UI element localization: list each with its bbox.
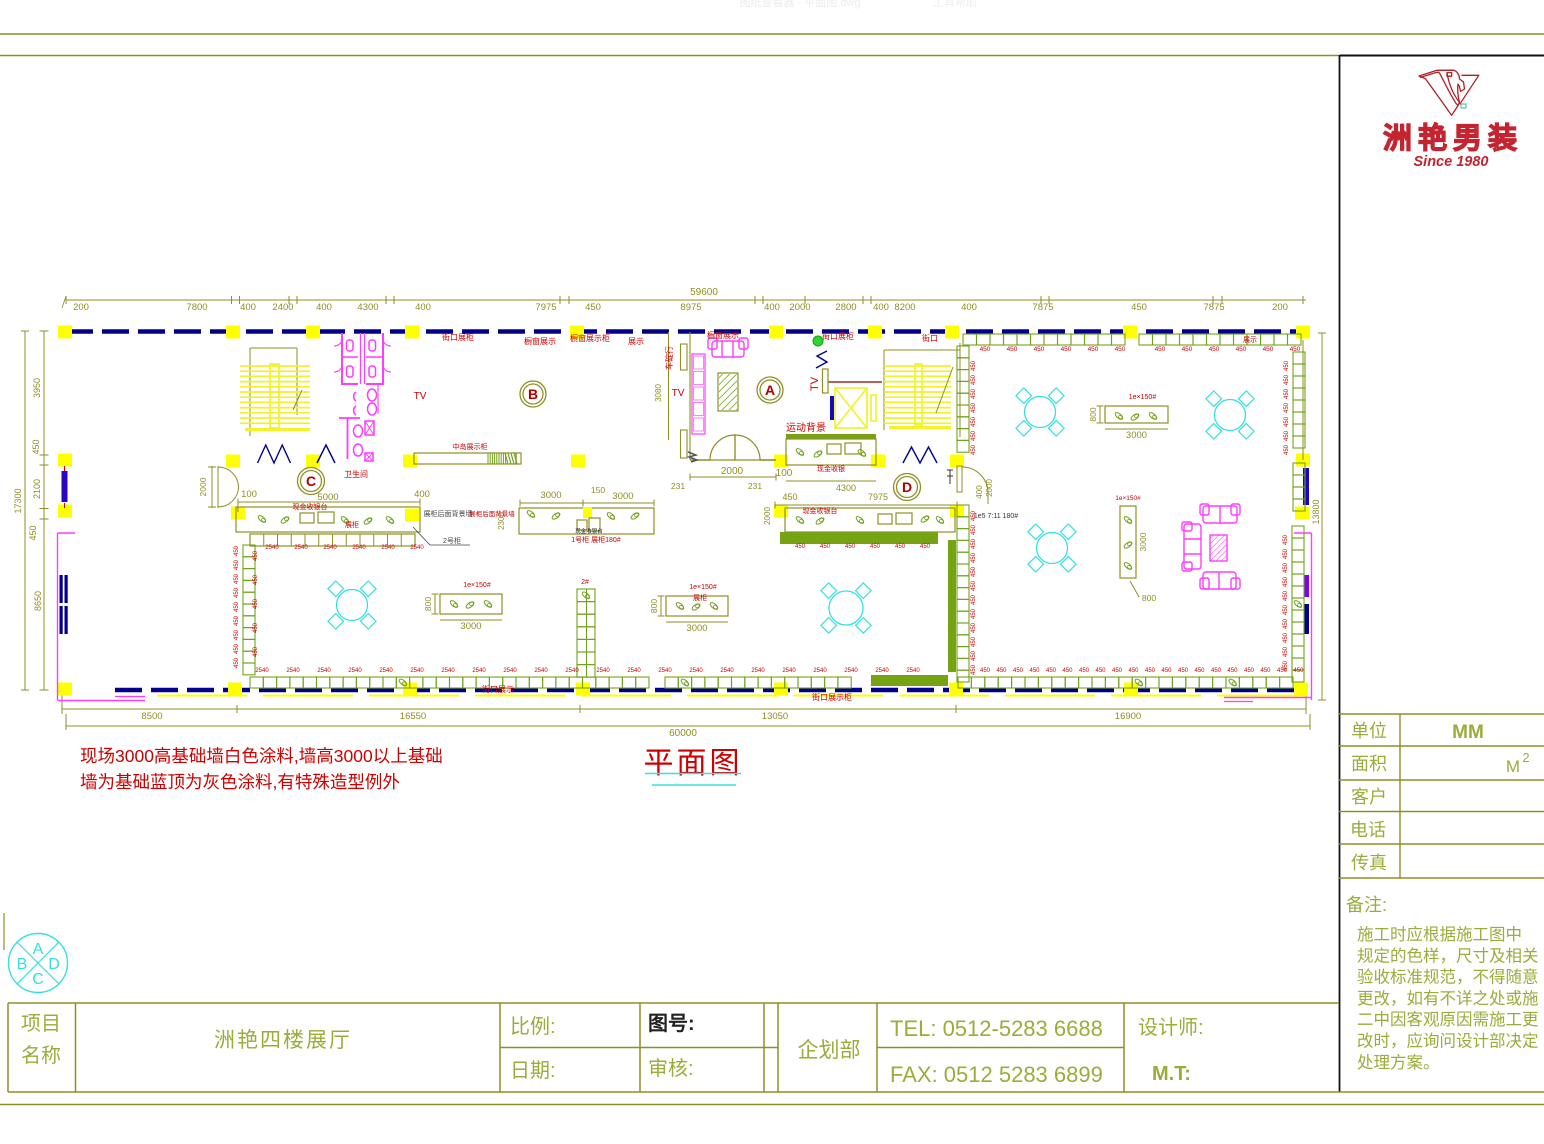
svg-text:150: 150 [591,485,605,495]
svg-text:展示: 展示 [628,337,644,346]
svg-text:450: 450 [971,430,977,441]
svg-text:450: 450 [1029,668,1040,674]
svg-text:450: 450 [971,360,977,371]
svg-text:450: 450 [971,524,977,535]
svg-text:450: 450 [1115,346,1126,353]
svg-text:450: 450 [971,608,977,619]
svg-text:平面图: 平面图 [644,747,743,780]
svg-text:450: 450 [845,544,856,550]
svg-text:2540: 2540 [294,545,308,551]
svg-text:图纸查看器 - 平面图.dwg: 图纸查看器 - 平面图.dwg [739,0,860,9]
svg-text:橱窗展示柜: 橱窗展示柜 [570,333,610,343]
svg-text:450: 450 [996,668,1007,674]
svg-text:1e×150#: 1e×150# [463,582,491,589]
svg-text:1号柜 展柜180#: 1号柜 展柜180# [571,535,621,544]
svg-text:450: 450 [971,594,977,605]
svg-text:2540: 2540 [503,668,517,674]
svg-text:2540: 2540 [265,545,279,551]
svg-text:450: 450 [1283,576,1289,587]
svg-text:1e×150#: 1e×150# [1115,495,1141,502]
svg-text:450: 450 [1209,346,1220,353]
svg-text:现场3000高基础墙白色涂料,墙高3000以上基础: 现场3000高基础墙白色涂料,墙高3000以上基础 [80,746,443,766]
svg-text:1e×150#: 1e×150# [689,584,717,591]
svg-text:FAX: 0512 5283 6899: FAX: 0512 5283 6899 [890,1062,1103,1087]
svg-text:2540: 2540 [844,668,858,674]
svg-text:D: D [902,479,912,495]
svg-text:2540: 2540 [720,668,734,674]
svg-text:1e×150#: 1e×150# [1129,394,1157,401]
svg-text:2540: 2540 [410,545,424,551]
svg-text:17300: 17300 [13,488,23,513]
svg-text:16900: 16900 [1115,711,1141,722]
svg-text:TV: TV [672,388,685,399]
svg-text:日期:: 日期: [510,1060,556,1082]
svg-text:450: 450 [1293,668,1304,674]
svg-text:450: 450 [971,664,977,675]
svg-text:洲艳四楼展厅: 洲艳四楼展厅 [214,1029,352,1052]
svg-text:2#: 2# [581,579,589,586]
svg-text:工具帮助: 工具帮助 [933,0,977,9]
svg-text:7975: 7975 [535,302,556,313]
svg-text:400: 400 [764,302,780,313]
svg-text:展柜后面背景墙: 展柜后面背景墙 [424,509,473,518]
svg-text:B: B [528,386,538,402]
svg-text:3000: 3000 [612,491,633,502]
svg-text:备注:: 备注: [1346,895,1387,915]
svg-text:60000: 60000 [669,728,697,739]
svg-text:450: 450 [253,646,259,657]
svg-text:街口展柜: 街口展柜 [442,332,474,342]
svg-text:450: 450 [1283,618,1289,629]
svg-text:单位: 单位 [1351,721,1387,741]
svg-text:二中因客观原因需施工更: 二中因客观原因需施工更 [1357,1010,1539,1029]
svg-text:400: 400 [415,302,431,313]
svg-text:街口: 街口 [922,333,938,343]
svg-text:2540: 2540 [596,668,610,674]
svg-text:450: 450 [31,439,41,454]
svg-text:450: 450 [1284,430,1290,441]
svg-text:450: 450 [795,544,806,550]
svg-text:电话: 电话 [1350,820,1386,840]
svg-text:3000: 3000 [460,621,481,632]
svg-text:更改，如有不详之处或施: 更改，如有不详之处或施 [1357,989,1539,1008]
svg-text:街口展示: 街口展示 [482,684,514,694]
svg-text:2400: 2400 [272,302,293,313]
svg-text:M: M [1506,757,1520,776]
svg-text:450: 450 [1034,346,1045,353]
svg-text:现金收银: 现金收银 [817,464,845,473]
svg-text:450: 450 [1244,668,1255,674]
svg-text:450: 450 [1227,668,1238,674]
svg-text:16550: 16550 [400,711,426,722]
svg-text:2540: 2540 [689,668,703,674]
svg-text:2: 2 [1522,750,1529,765]
svg-text:街口展柜: 街口展柜 [822,331,854,341]
svg-text:450: 450 [971,374,977,385]
svg-text:450: 450 [1128,668,1139,674]
svg-text:4300: 4300 [357,302,378,313]
svg-text:洲艳男装: 洲艳男装 [1383,121,1523,155]
svg-text:车碇行: 车碇行 [664,346,674,370]
svg-text:7875: 7875 [1032,302,1053,313]
svg-text:450: 450 [1161,668,1172,674]
svg-text:450: 450 [234,601,240,612]
svg-text:450: 450 [1284,444,1290,455]
svg-text:2540: 2540 [410,668,424,674]
svg-text:450: 450 [1283,534,1289,545]
svg-text:13800: 13800 [1311,499,1321,524]
svg-text:450: 450 [971,444,977,455]
svg-text:C: C [32,971,44,988]
svg-text:2540: 2540 [782,668,796,674]
svg-text:2540: 2540 [565,668,579,674]
svg-text:450: 450 [895,544,906,550]
svg-text:2540: 2540 [381,545,395,551]
svg-text:400: 400 [316,302,332,313]
svg-text:450: 450 [234,615,240,626]
svg-text:13050: 13050 [762,711,788,722]
svg-text:橱窗展示: 橱窗展示 [707,330,739,340]
svg-text:设计师:: 设计师: [1138,1016,1204,1039]
svg-text:450: 450 [1145,668,1156,674]
svg-text:450: 450 [1283,632,1289,643]
svg-text:项目: 项目 [21,1013,61,1035]
svg-text:450: 450 [234,545,240,556]
svg-text:450: 450 [1260,668,1271,674]
svg-text:2000: 2000 [721,466,744,477]
svg-text:8650: 8650 [33,591,43,611]
svg-text:2540: 2540 [751,668,765,674]
svg-text:规定的色样，尺寸及相关: 规定的色样，尺寸及相关 [1357,946,1539,965]
svg-text:TV: TV [414,391,427,402]
svg-text:450: 450 [1155,346,1166,353]
svg-text:审核:: 审核: [648,1057,694,1080]
svg-text:B: B [17,956,28,973]
svg-text:450: 450 [971,622,977,633]
svg-text:450: 450 [1283,590,1289,601]
svg-text:450: 450 [971,416,977,427]
svg-text:展柜: 展柜 [345,520,359,529]
svg-text:450: 450 [920,544,931,550]
svg-text:800: 800 [649,599,659,613]
svg-text:施工时应根据施工图中: 施工时应根据施工图中 [1357,925,1522,944]
svg-text:450: 450 [253,622,259,633]
svg-text:100: 100 [241,489,257,500]
svg-text:2540: 2540 [534,668,548,674]
svg-text:3950: 3950 [32,378,42,398]
svg-text:图号:: 图号: [648,1012,695,1035]
svg-text:TV: TV [809,376,821,391]
svg-text:2000: 2000 [789,302,810,313]
svg-text:450: 450 [980,668,991,674]
svg-text:450: 450 [585,302,601,313]
svg-text:800: 800 [423,597,433,611]
svg-text:450: 450 [234,587,240,598]
svg-text:2540: 2540 [906,668,920,674]
svg-text:2540: 2540 [352,545,366,551]
svg-text:450: 450 [971,650,977,661]
svg-text:450: 450 [1284,402,1290,413]
svg-text:墙为基础蓝顶为灰色涂料,有特殊造型例外: 墙为基础蓝顶为灰色涂料,有特殊造型例外 [80,772,400,792]
svg-text:C: C [306,473,316,489]
svg-text:450: 450 [234,573,240,584]
svg-text:400: 400 [240,302,256,313]
svg-text:450: 450 [1013,668,1024,674]
svg-text:现金收银台: 现金收银台 [575,527,603,535]
svg-text:8500: 8500 [141,711,162,722]
svg-text:450: 450 [1211,668,1222,674]
svg-text:2540: 2540 [379,668,393,674]
svg-text:450: 450 [1046,668,1057,674]
svg-text:橱窗展示: 橱窗展示 [524,336,556,346]
svg-text:400: 400 [975,485,984,499]
svg-text:450: 450 [1284,374,1290,385]
svg-text:2000: 2000 [198,477,208,496]
svg-text:客户: 客户 [1351,787,1387,807]
svg-text:改时，应询问设计部决定: 改时，应询问设计部决定 [1357,1032,1539,1051]
svg-text:2540: 2540 [348,668,362,674]
svg-text:450: 450 [1263,346,1274,353]
svg-text:8975: 8975 [680,302,701,313]
svg-text:200: 200 [1272,302,1288,313]
svg-text:450: 450 [971,580,977,591]
svg-text:450: 450 [1007,346,1018,353]
svg-text:2540: 2540 [472,668,486,674]
svg-text:A: A [765,382,775,398]
svg-text:450: 450 [253,550,259,561]
svg-text:街口展示柜: 街口展示柜 [812,692,852,702]
svg-text:3000: 3000 [540,490,561,501]
svg-text:450: 450 [980,346,991,353]
svg-text:2540: 2540 [875,668,889,674]
svg-text:2540: 2540 [323,545,337,551]
svg-text:231: 231 [748,481,762,491]
svg-text:验收标准规范，不得随意: 验收标准规范，不得随意 [1357,968,1539,987]
svg-text:450: 450 [820,544,831,550]
svg-text:3000: 3000 [1126,430,1147,441]
svg-text:现金收银台: 现金收银台 [293,502,328,511]
svg-text:450: 450 [971,566,977,577]
svg-text:450: 450 [1062,668,1073,674]
svg-text:450: 450 [1182,346,1193,353]
svg-text:4300: 4300 [836,483,856,493]
svg-text:1e5 7:11 180#: 1e5 7:11 180# [974,513,1018,520]
svg-text:450: 450 [1131,302,1147,313]
svg-text:TEL: 0512-5283 6688: TEL: 0512-5283 6688 [890,1016,1103,1041]
svg-text:卫生间: 卫生间 [344,469,368,479]
svg-text:200: 200 [73,302,89,313]
svg-text:3080: 3080 [654,384,663,402]
svg-text:2100: 2100 [32,479,42,499]
svg-text:450: 450 [234,559,240,570]
svg-text:2000: 2000 [763,507,772,525]
svg-text:450: 450 [1088,346,1099,353]
svg-text:企划部: 企划部 [798,1039,861,1062]
svg-text:2540: 2540 [627,668,641,674]
svg-text:450: 450 [1112,668,1123,674]
svg-text:450: 450 [1284,388,1290,399]
svg-text:2号柜: 2号柜 [443,536,461,545]
svg-text:450: 450 [253,598,259,609]
svg-text:450: 450 [253,574,259,585]
svg-text:450: 450 [1061,346,1072,353]
svg-text:450: 450 [971,538,977,549]
svg-text:800: 800 [1142,593,1156,603]
svg-text:2800: 2800 [835,302,856,313]
svg-text:运动背景: 运动背景 [786,421,826,434]
svg-text:MM: MM [1452,722,1484,743]
svg-text:450: 450 [971,388,977,399]
svg-text:7875: 7875 [1203,302,1224,313]
svg-text:450: 450 [1284,360,1290,371]
svg-text:800: 800 [1088,407,1098,421]
svg-text:7800: 7800 [186,302,207,313]
svg-text:400: 400 [414,489,430,500]
svg-text:7975: 7975 [868,492,888,502]
svg-text:2540: 2540 [255,668,269,674]
svg-text:450: 450 [1079,668,1090,674]
svg-text:400: 400 [961,302,977,313]
svg-text:2540: 2540 [286,668,300,674]
svg-text:展柜: 展柜 [693,593,707,602]
svg-text:展示: 展示 [1243,336,1257,344]
svg-text:2000: 2000 [985,479,994,497]
svg-text:Since 1980: Since 1980 [1414,154,1489,170]
svg-text:450: 450 [234,643,240,654]
svg-text:450: 450 [1283,562,1289,573]
svg-text:2540: 2540 [441,668,455,674]
svg-text:2540: 2540 [317,668,331,674]
svg-text:450: 450 [1283,646,1289,657]
svg-text:处理方案。: 处理方案。 [1357,1053,1440,1072]
svg-text:450: 450 [1277,668,1288,674]
svg-text:2540: 2540 [813,668,827,674]
svg-text:450: 450 [234,629,240,640]
svg-text:400: 400 [873,302,889,313]
svg-text:450: 450 [971,402,977,413]
svg-text:中岛展示柜: 中岛展示柜 [453,442,488,451]
svg-text:3000: 3000 [686,623,707,634]
svg-text:450: 450 [971,636,977,647]
svg-text:展柜后面背景墙: 展柜后面背景墙 [469,509,515,518]
svg-text:450: 450 [1283,604,1289,615]
svg-text:450: 450 [870,544,881,550]
svg-text:450: 450 [1095,668,1106,674]
svg-text:现金收银台: 现金收银台 [803,506,838,515]
svg-text:面积: 面积 [1351,754,1387,774]
svg-text:8200: 8200 [894,302,915,313]
svg-text:450: 450 [1178,668,1189,674]
svg-text:450: 450 [1283,548,1289,559]
svg-text:450: 450 [1236,346,1247,353]
svg-text:450: 450 [971,552,977,563]
svg-text:3000: 3000 [1138,532,1148,551]
svg-text:450: 450 [1194,668,1205,674]
svg-text:450: 450 [1284,416,1290,427]
svg-text:A: A [33,941,44,958]
svg-text:231: 231 [671,481,685,491]
svg-text:450: 450 [234,657,240,668]
svg-text:59600: 59600 [690,287,718,298]
svg-text:450: 450 [28,525,38,540]
svg-text:2540: 2540 [658,668,672,674]
svg-text:传真: 传真 [1351,853,1387,873]
svg-text:D: D [48,956,60,973]
svg-text:450: 450 [782,492,797,502]
svg-text:5000: 5000 [317,492,338,503]
svg-text:名称: 名称 [21,1044,61,1067]
svg-text:M.T:: M.T: [1152,1063,1191,1085]
svg-text:100: 100 [776,468,793,479]
svg-text:比例:: 比例: [510,1015,556,1038]
